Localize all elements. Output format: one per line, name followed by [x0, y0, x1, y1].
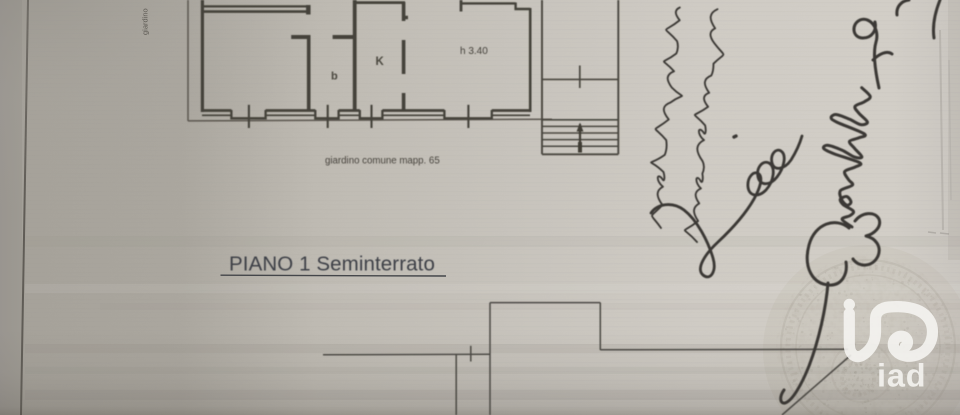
svg-text:giardino comune mapp. 65: giardino comune mapp. 65: [325, 156, 440, 167]
svg-text:giardino: giardino: [141, 8, 150, 35]
svg-text:iad: iad: [877, 358, 926, 394]
svg-text:PIANO 1 Seminterrato: PIANO 1 Seminterrato: [229, 253, 435, 276]
svg-text:K: K: [376, 56, 385, 68]
svg-text:b: b: [331, 71, 338, 83]
svg-text:h 3.40: h 3.40: [460, 46, 488, 57]
